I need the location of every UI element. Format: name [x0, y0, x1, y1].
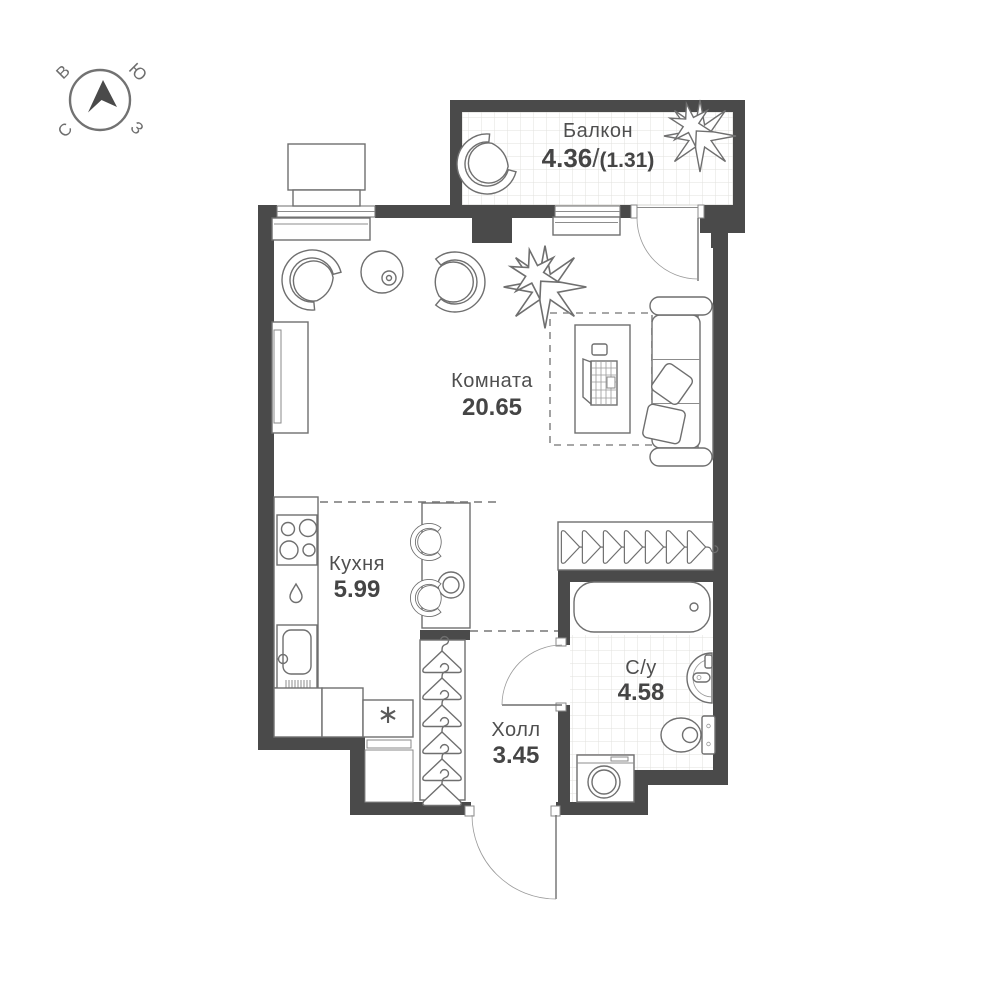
plant-icon: [664, 100, 736, 172]
base-cabinet: [322, 688, 363, 737]
living-room: Комната 20.65: [270, 238, 713, 466]
compass-west-label: З: [127, 118, 148, 139]
floor-plan: В Ю С З: [0, 0, 1001, 1001]
plant-icon: [504, 246, 587, 329]
hall-area: 3.45: [493, 742, 540, 769]
kitchen-area: 5.99: [334, 576, 381, 603]
compass-east-label: В: [52, 61, 73, 82]
sofa: [642, 297, 713, 466]
door-swing-arc: [472, 815, 556, 899]
window-sill: [553, 217, 620, 235]
bathroom-door: [502, 638, 566, 711]
base-cabinet: [274, 688, 322, 737]
tv-icon: [274, 330, 281, 423]
hall-label: Холл: [491, 719, 540, 741]
kitchen-label: Кухня: [329, 553, 385, 575]
cabinet-niche: [365, 750, 413, 802]
floor-plan-page: В Ю С З: [0, 0, 1001, 1001]
balcony-label: Балкон: [563, 120, 633, 142]
washing-machine-icon: [577, 755, 634, 802]
fridge-snowflake-icon: ∗: [377, 700, 399, 730]
chair-icon: [410, 523, 441, 560]
coffee-table: [361, 251, 403, 293]
pillow-icon: [642, 403, 686, 444]
chair-icon: [410, 579, 441, 616]
door-swing-arc: [502, 645, 562, 705]
compass: В Ю С З: [52, 59, 150, 141]
kitchen-sink-icon: [277, 625, 317, 691]
closet: [558, 522, 718, 570]
compass-needle-icon: [88, 80, 117, 113]
window-sill: [272, 218, 370, 240]
armchair-icon: [435, 252, 485, 312]
living-room-label: Комната: [451, 370, 533, 392]
compass-north-label: С: [54, 119, 76, 141]
hall: Холл 3.45: [420, 631, 558, 806]
compass-south-label: Ю: [125, 59, 151, 85]
toilet-icon: [661, 716, 715, 754]
balcony-window: [553, 206, 620, 235]
bathroom-label: С/у: [625, 657, 657, 679]
stove-icon: [277, 515, 317, 565]
exterior-ac-unit: [288, 144, 365, 190]
living-room-area: 20.65: [462, 394, 522, 421]
balcony-door: [631, 205, 704, 281]
door-swing-arc: [637, 218, 698, 279]
left-window: [272, 144, 375, 240]
cabinet-niche: [367, 740, 411, 748]
armchair-icon: [270, 238, 345, 316]
bathtub-icon: [574, 582, 710, 632]
bathroom-area: 4.58: [618, 679, 665, 706]
entrance-door: [465, 806, 560, 899]
